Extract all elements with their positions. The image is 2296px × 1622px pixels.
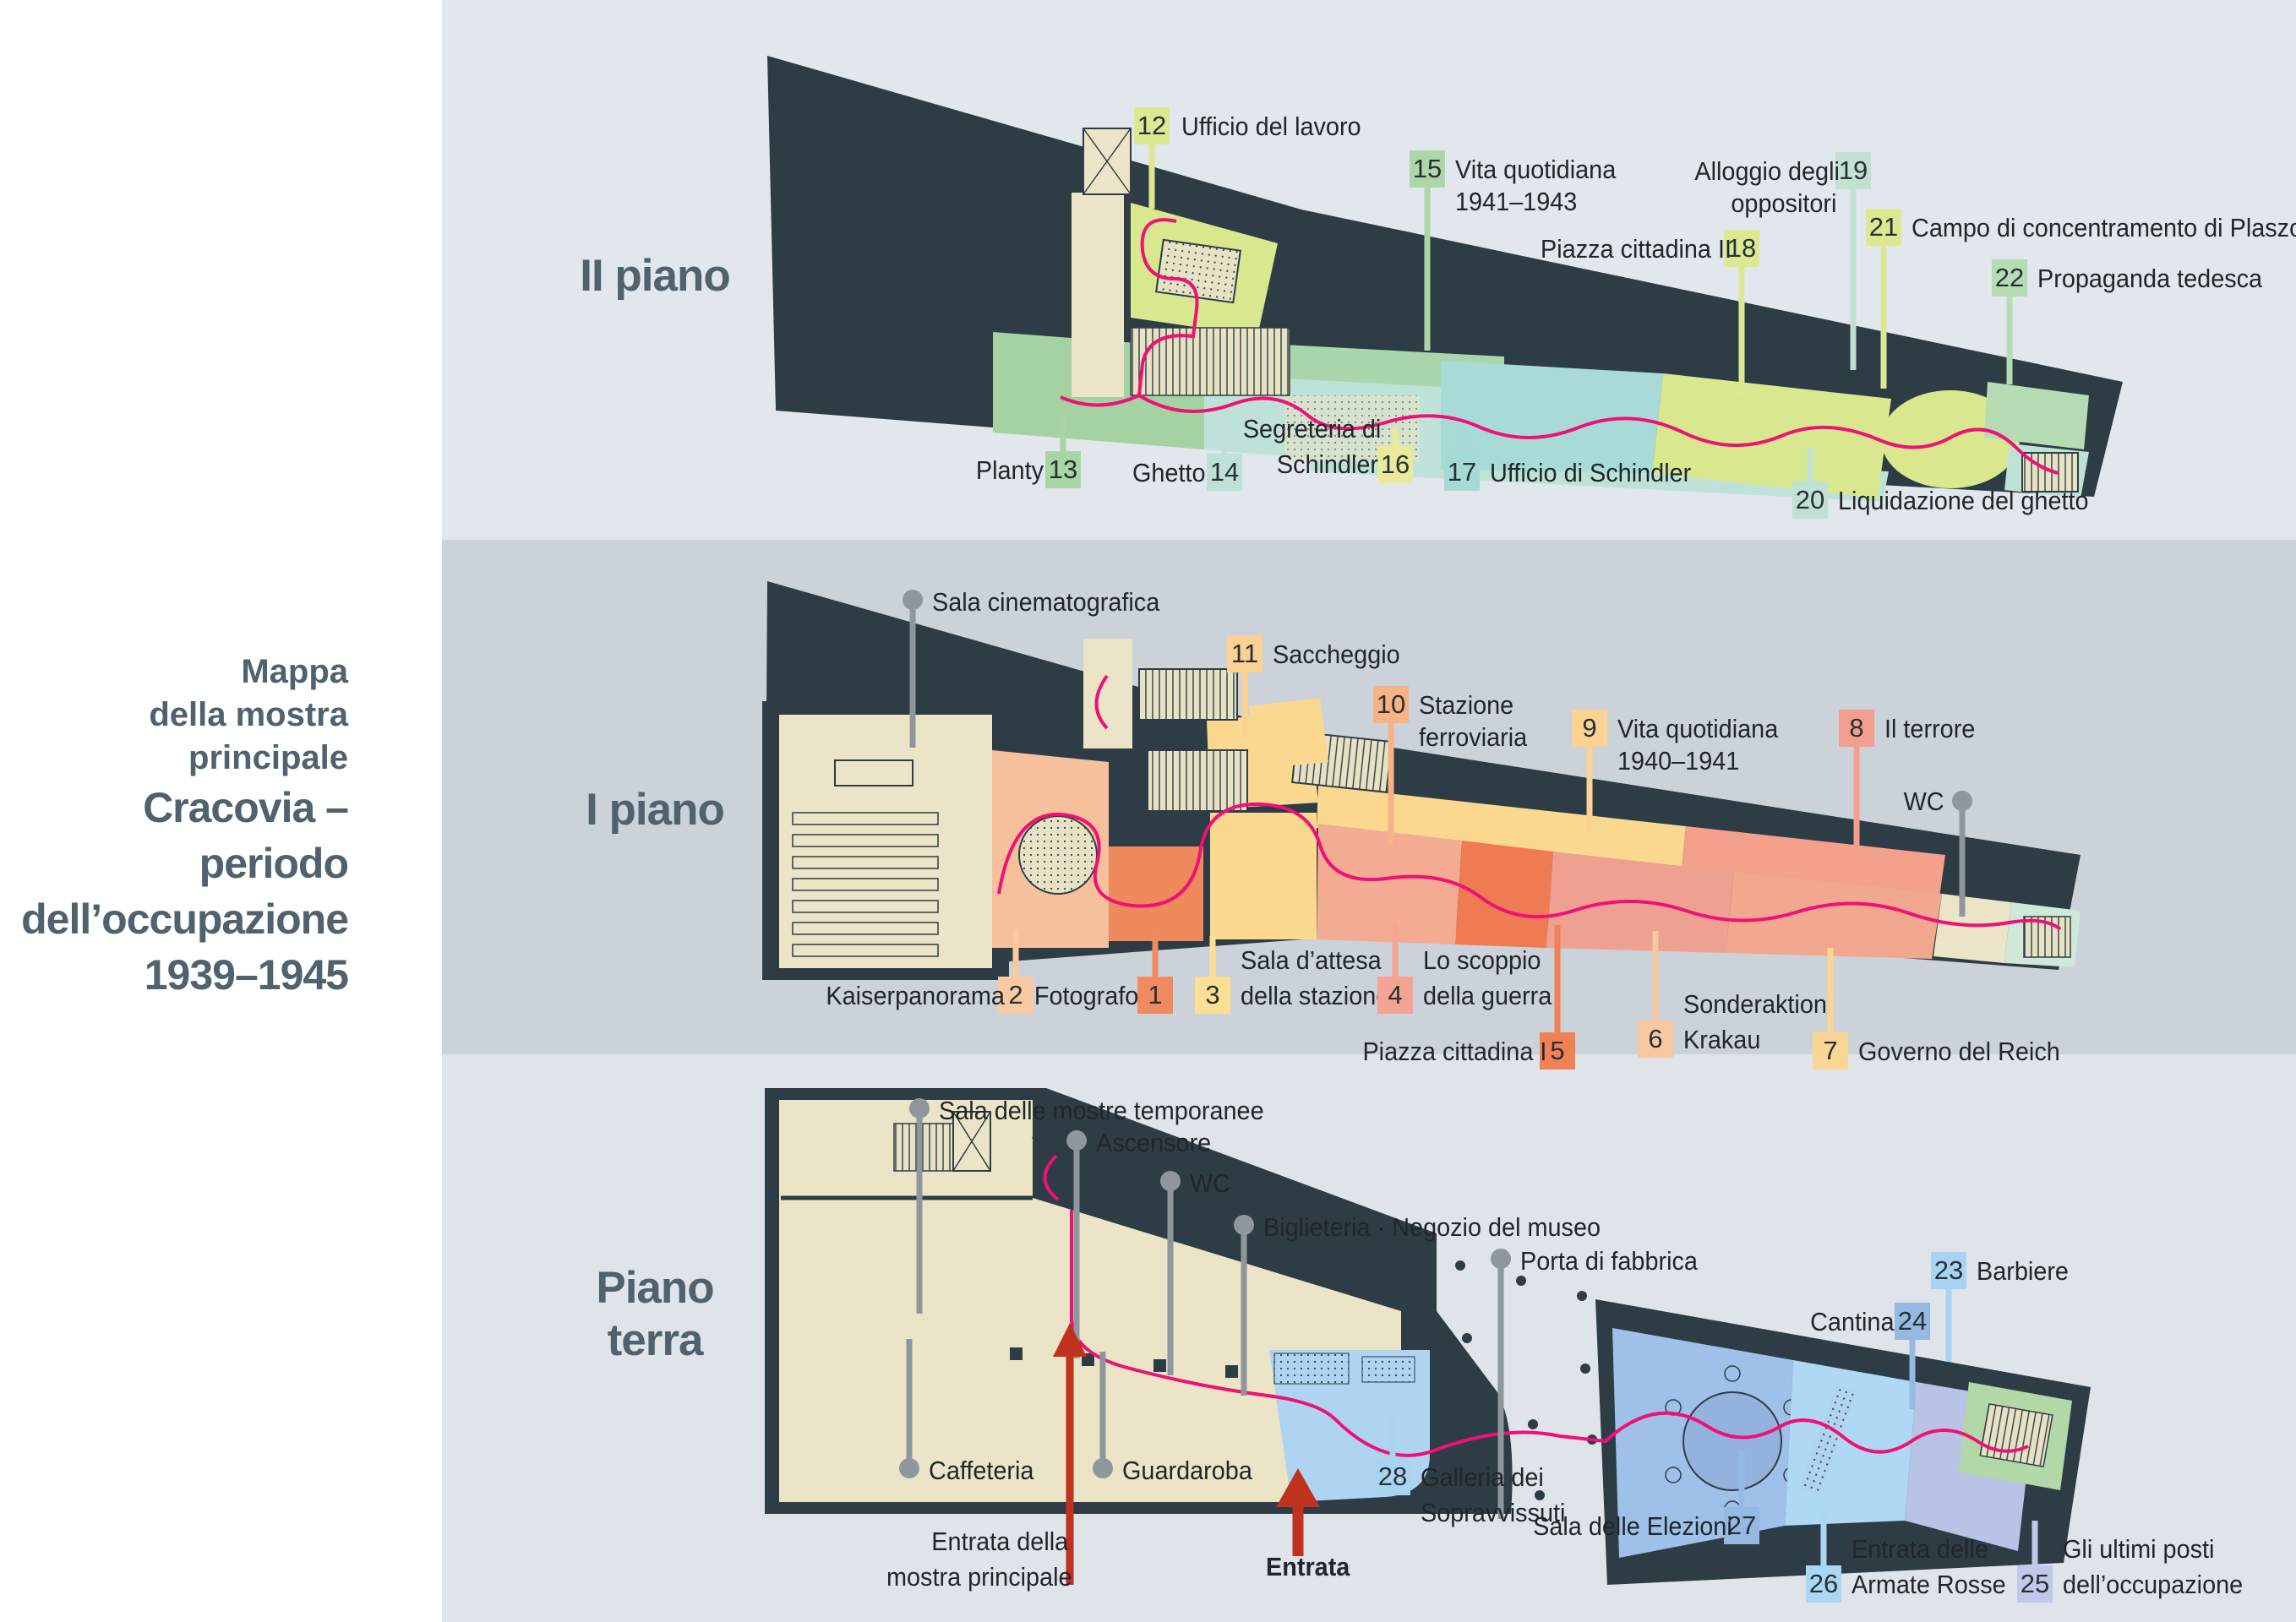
legend-label-campo-di-plaszow: Campo di concentramento di Plaszow xyxy=(1912,212,2296,244)
legend-label-stazione-ferroviaria-line2: ferroviaria xyxy=(1419,721,1527,754)
legend-label-sonderaktion-krakau-line2: Krakau xyxy=(1683,1024,1760,1056)
pin-wc-primo-piano xyxy=(1952,791,1972,811)
pin-caffeteria xyxy=(899,1458,919,1478)
legend-badge-governo-del-reich: 7 xyxy=(1813,1032,1848,1070)
legend-badge-propaganda-tedesca: 22 xyxy=(1992,259,2027,297)
legend-label-entrata-mostra-principale-line1: Entrata della xyxy=(931,1526,1068,1558)
legend-label-vita-quotidiana-1941-1943-line1: Vita quotidiana xyxy=(1455,154,1616,186)
legend-label-barbiere: Barbiere xyxy=(1977,1255,2069,1287)
legend-label-saccheggio: Saccheggio xyxy=(1273,639,1400,671)
floor-label-line: I piano xyxy=(586,784,724,836)
legend-label-vita-quotidiana-1940-1941-line1: Vita quotidiana xyxy=(1617,713,1778,745)
map-title-small-line: della mostra xyxy=(17,694,348,737)
legend-label-vita-quotidiana-1941-1943-line2: 1941–1943 xyxy=(1455,186,1577,218)
map-title-large-line: Cracovia – xyxy=(17,780,348,835)
legend-label-stazione-ferroviaria-line1: Stazione xyxy=(1419,689,1513,721)
pin-ascensore xyxy=(1066,1130,1087,1151)
floor-label-line: terra xyxy=(596,1314,713,1367)
legend-badge-galleria-dei-sopravvissuti: 28 xyxy=(1375,1458,1410,1495)
legend-badge-segreteria-di-schindler: 16 xyxy=(1377,446,1413,483)
floor-label-floor-1: I piano xyxy=(586,784,724,836)
legend-label-planty: Planty xyxy=(976,454,1044,487)
legend-badge-vita-quotidiana-1940-1941: 9 xyxy=(1572,710,1607,747)
legend-badge-entrata-armate-rosse: 26 xyxy=(1806,1565,1841,1603)
legend-label-segreteria-di-schindler-line1: Segreteria di xyxy=(1243,413,1381,445)
legend-label-sonderaktion-krakau-line1: Sonderaktion xyxy=(1683,988,1827,1021)
legend-label-guardaroba: Guardaroba xyxy=(1122,1455,1252,1487)
museum-map-poster: Mappadella mostraprincipale Cracovia –pe… xyxy=(0,0,2296,1622)
legend-label-il-terrore: Il terrore xyxy=(1884,713,1975,745)
legend-label-ultimi-posti-occupazione-line1: Gli ultimi posti xyxy=(2063,1533,2214,1565)
legend-badge-cantina: 24 xyxy=(1895,1303,1930,1340)
legend-label-lo-scoppio-della-guerra-line1: Lo scoppio xyxy=(1423,944,1541,977)
legend-label-sala-attesa-stazione-line1: Sala d’attesa xyxy=(1241,944,1382,977)
legend-label-sala-delle-elezioni: Sala delle Elezioni xyxy=(1533,1510,1732,1543)
legend-badge-planty: 13 xyxy=(1045,451,1081,488)
floor-label-floor-2: II piano xyxy=(580,250,730,302)
legend-label-sala-attesa-stazione-line2: della stazione xyxy=(1241,980,1389,1012)
legend-label-wc-primo-piano: WC xyxy=(1904,786,1944,818)
legend-label-alloggio-degli-oppositori-line2: oppositori xyxy=(1731,188,1836,220)
legend-label-sala-mostre-temporanee: Sala delle mostre temporanee xyxy=(939,1095,1264,1127)
floor-label-line: Piano xyxy=(596,1262,713,1314)
map-title-small: Mappadella mostraprincipale xyxy=(17,650,348,780)
legend-label-kaiserpanorama: Kaiserpanorama xyxy=(826,980,1005,1012)
map-title-large: Cracovia –periododell’occupazione1939–19… xyxy=(17,780,348,1003)
pin-sala-mostre-temporanee xyxy=(909,1098,930,1119)
map-title-small-line: Mappa xyxy=(17,650,348,694)
map-title-small-line: principale xyxy=(17,737,348,780)
legend-label-ufficio-del-lavoro: Ufficio del lavoro xyxy=(1181,111,1361,143)
legend-label-liquidazione-del-ghetto: Liquidazione del ghetto xyxy=(1838,485,2089,517)
legend-label-entrata-mostra-principale-line2: mostra principale xyxy=(886,1561,1072,1593)
legend-label-vita-quotidiana-1940-1941-line2: 1940–1941 xyxy=(1617,745,1739,777)
legend-label-propaganda-tedesca: Propaganda tedesca xyxy=(2037,263,2262,295)
legend-label-galleria-dei-sopravvissuti-line1: Galleria dei xyxy=(1421,1461,1544,1494)
map-title: Mappadella mostraprincipale Cracovia –pe… xyxy=(17,650,348,1003)
legend-label-ghetto: Ghetto xyxy=(1132,457,1206,489)
legend-label-cantina: Cantina xyxy=(1810,1306,1894,1338)
arrow-head-entrata-arrow xyxy=(1276,1468,1320,1507)
legend-label-entrata: Entrata xyxy=(1266,1551,1350,1583)
legend-label-biglieteria-negozio: Biglieteria · Negozio del museo xyxy=(1263,1211,1601,1244)
legend-badge-fotografo: 1 xyxy=(1137,977,1173,1014)
legend-badge-lo-scoppio-della-guerra: 4 xyxy=(1377,977,1413,1014)
pin-porta-di-fabbrica xyxy=(1491,1249,1511,1269)
legend-badge-ultimi-posti-occupazione: 25 xyxy=(2017,1565,2053,1603)
legend-badge-ufficio-del-lavoro: 12 xyxy=(1134,107,1170,144)
legend-label-caffeteria: Caffeteria xyxy=(929,1455,1033,1487)
legend-label-piazza-cittadina-1: Piazza cittadina I xyxy=(1362,1036,1546,1068)
legend-label-fotografo: Fotografo xyxy=(1034,980,1138,1012)
arrow-head-entrata-mostra-principale-arrow xyxy=(1053,1323,1087,1357)
pin-wc-piano-terra xyxy=(1160,1171,1181,1191)
legend-label-porta-di-fabbrica: Porta di fabbrica xyxy=(1520,1245,1698,1277)
legend-badge-barbiere: 23 xyxy=(1931,1252,1966,1289)
legend-label-wc-piano-terra: WC xyxy=(1190,1168,1230,1200)
legend-badge-stazione-ferroviaria: 10 xyxy=(1373,686,1409,723)
legend-badge-vita-quotidiana-1941-1943: 15 xyxy=(1410,150,1445,188)
floor-label-line: II piano xyxy=(580,250,730,302)
map-title-large-line: 1939–1945 xyxy=(17,947,348,1003)
legend-label-entrata-armate-rosse-line2: Armate Rosse xyxy=(1852,1569,2006,1601)
floor-label-floor-ground: Pianoterra xyxy=(596,1262,713,1367)
legend-label-piazza-cittadina-2: Piazza cittadina II xyxy=(1541,233,1732,265)
legend-label-lo-scoppio-della-guerra-line2: della guerra xyxy=(1423,980,1552,1012)
legend-label-ascensore: Ascensore xyxy=(1096,1127,1211,1159)
legend-badge-il-terrore: 8 xyxy=(1839,710,1874,747)
legend-label-sala-cinematografica: Sala cinematografica xyxy=(932,586,1159,618)
pin-guardaroba xyxy=(1093,1458,1113,1478)
map-title-large-line: dell’occupazione xyxy=(17,891,348,947)
legend-label-segreteria-di-schindler-line2: Schindler xyxy=(1277,449,1378,481)
legend-label-ultimi-posti-occupazione-line2: dell’occupazione xyxy=(2063,1569,2243,1601)
legend-badge-sonderaktion-krakau: 6 xyxy=(1638,1021,1673,1058)
legend-badge-campo-di-plaszow: 21 xyxy=(1866,209,1901,246)
legend-label-entrata-armate-rosse-line1: Entrata delle xyxy=(1852,1533,1988,1565)
legend-badge-ghetto: 14 xyxy=(1207,454,1242,491)
legend-badge-liquidazione-del-ghetto: 20 xyxy=(1792,482,1828,519)
legend-label-governo-del-reich: Governo del Reich xyxy=(1858,1036,2060,1068)
legend-badge-saccheggio: 11 xyxy=(1227,635,1263,672)
legend-badge-sala-attesa-stazione: 3 xyxy=(1195,977,1230,1014)
legend-label-alloggio-degli-oppositori-line1: Alloggio degli xyxy=(1694,155,1840,188)
legend-badge-alloggio-degli-oppositori: 19 xyxy=(1835,152,1871,189)
legend-label-ufficio-di-schindler: Ufficio di Schindler xyxy=(1490,457,1691,489)
map-title-large-line: periodo xyxy=(17,835,348,891)
pin-sala-cinematografica xyxy=(903,590,923,610)
legend-badge-ufficio-di-schindler: 17 xyxy=(1444,454,1480,491)
pin-biglieteria-negozio xyxy=(1234,1215,1254,1235)
